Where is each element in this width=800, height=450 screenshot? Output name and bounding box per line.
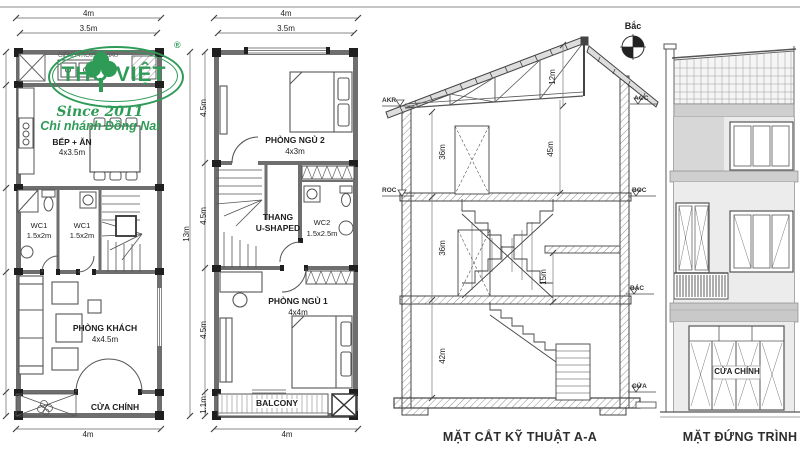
plan-upper-bedroom1-name: PHÒNG NGỦ 1 (243, 297, 353, 306)
plan-upper-bedroom1-furniture (220, 272, 352, 388)
section-level-akr: AKR (382, 97, 408, 104)
plan-upper-wc2-name: WC2 (302, 219, 342, 227)
plan-ground-window (156, 288, 163, 346)
logo-registered-mark: ® (174, 40, 181, 50)
logo-brand-text: THỌ VIỆT (48, 63, 180, 87)
section-title: MẶT CẮT KỸ THUẬT A-A (410, 431, 630, 445)
plan-ground-wc-right-name: WC1 (63, 222, 101, 230)
plan-ground-dim-bottom: 4m (58, 431, 118, 440)
plan-ground-main-door-label: CỬA CHÍNH (85, 403, 145, 412)
plan-upper-bedroom2-size: 4x3m (240, 148, 350, 157)
section-level-aoc: AOC (634, 95, 660, 102)
plan-upper-wc2-size: 1.5x2.5m (296, 230, 348, 238)
section-level-cua: CỬA (632, 383, 658, 390)
logo-branch-text: Chi nhánh Đồng Nai (30, 119, 170, 133)
plan-upper-dim-seg-3: 4.5m (199, 315, 209, 345)
plan-upper-balcony-label: BALCONY (254, 399, 300, 408)
section-dim-attic-left: 36m (438, 137, 448, 167)
plan-upper-dim-seg-4: 1.1m (199, 390, 209, 420)
section-roof (386, 37, 658, 118)
section-level-roc: ROC (382, 187, 408, 194)
plan-upper-bedroom2-name: PHÒNG NGỦ 2 (240, 136, 350, 145)
blueprint-canvas: 4m 3.5m GIẾNG TRỜI/SÂN SAU BẾP + ĂN 4x3.… (0, 0, 800, 450)
plan-ground-dim-top-inner: 3.5m (16, 25, 161, 34)
plan-ground-wc-right-size: 1.5x2m (57, 232, 107, 240)
plan-ground-kitchen-name: BẾP + ĂN (40, 138, 104, 147)
elevation-facade (660, 44, 800, 417)
section-level-bac: BÁC (630, 285, 656, 292)
elevation-title: MẶT ĐỨNG TRÌNH (660, 431, 800, 445)
section-dim-ground: 42m (438, 341, 448, 371)
section-level-boc: BOC (632, 187, 658, 194)
plan-upper-dim-bottom: 4m (257, 431, 317, 440)
section-dim-floor2: 36m (438, 233, 448, 263)
compass-icon (620, 34, 646, 60)
plan-upper-dim-total: 13m (182, 219, 192, 249)
section-dim-attic-right: 45m (546, 134, 556, 164)
plan-upper-dim-top-inner: 3.5m (214, 25, 358, 34)
plan-upper-dim-top-outer: 4m (214, 10, 358, 19)
plan-ground-living-name: PHÒNG KHÁCH (55, 324, 155, 333)
plan-ground-kitchen-size: 4x3.5m (40, 149, 104, 158)
plan-ground-dim-top-outer: 4m (16, 10, 161, 19)
section-dim-landing: 15m (539, 262, 549, 292)
plan-upper-dim-seg-1: 4.5m (199, 93, 209, 123)
plan-ground-living-size: 4x4.5m (55, 336, 155, 345)
logo-since-text: Since 2011 (45, 104, 155, 120)
plan-upper-bedroom1-size: 4x4m (243, 309, 353, 318)
plan-upper-stair-label-1: THANG (248, 213, 308, 222)
elevation-main-door-label: CỬA CHÍNH (710, 368, 764, 377)
plan-upper-dim-seg-2: 4.5m (199, 201, 209, 231)
section-structure (394, 76, 656, 415)
plan-ground-wc-left-name: WC1 (20, 222, 58, 230)
compass-north-label: Bắc (618, 22, 648, 32)
plan-ground-stair (102, 196, 142, 272)
section-dim-roof: 12m (548, 62, 558, 92)
plan-upper-top-window (248, 47, 326, 54)
